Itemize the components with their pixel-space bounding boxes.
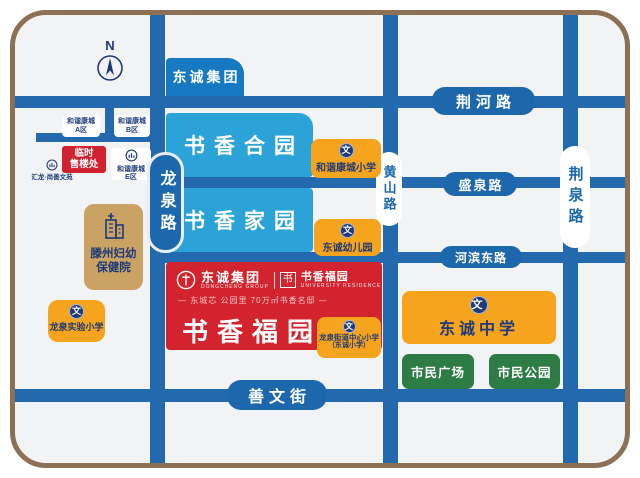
brand-seal-icon: 书	[280, 272, 296, 288]
poi-harmony-kangcheng-e: 和谐康城 E区	[111, 148, 151, 180]
poi-harmony-kangcheng-a: 和谐康城 A区	[62, 115, 100, 137]
wen-school-icon: 文	[340, 223, 355, 238]
logo-en: DONGCHENG GROUP	[201, 284, 269, 290]
poi-label-line1: 滕州妇幼	[84, 247, 143, 261]
wen-glyph: 文	[72, 306, 81, 316]
logo-divider	[274, 272, 275, 289]
poi-label: 龙泉实验小学	[48, 320, 105, 333]
road-label-shanwen-jie: 善文街	[227, 380, 327, 410]
compass-north: N	[96, 38, 124, 87]
poi-harmony-kangcheng-b: 和谐康城 B区	[114, 115, 150, 137]
poi-harmony-kangcheng-primary-school: 文 和谐康城小学	[311, 139, 381, 178]
poi-label-line2: （东诚小学）	[317, 342, 381, 350]
poi-dongcheng-middle-school: 文 东诚中学	[402, 291, 556, 344]
poi-label-line1: 临时	[62, 148, 106, 159]
wen-school-icon: 文	[470, 296, 488, 314]
vicinity-map: N 东诚集团 书香合园 书香家园 东诚集团 DONGCHENG GROUP	[0, 0, 640, 478]
wen-school-icon: 文	[69, 304, 84, 319]
road-huangshan-lu	[383, 15, 398, 463]
project-logo-row: 东诚集团 DONGCHENG GROUP 书 书香福园 UNIVERSITY R…	[176, 270, 381, 290]
building-icon	[46, 159, 58, 171]
poi-civic-park: 市民公园	[489, 354, 560, 389]
poi-dongcheng-kindergarten: 文 东诚幼儿园	[314, 219, 381, 256]
hospital-building-icon	[100, 212, 128, 242]
poi-label-line2: E区	[111, 174, 151, 183]
road-stub-north	[105, 96, 114, 142]
block-shuxiang-heyuan: 书香合园	[166, 113, 313, 177]
poi-label-line1: 和谐康城	[62, 118, 100, 127]
poi-label-line2: 售楼处	[62, 159, 106, 170]
wen-glyph: 文	[345, 322, 353, 331]
wen-glyph: 文	[341, 145, 350, 155]
map-frame: N 东诚集团 书香合园 书香家园 东诚集团 DONGCHENG GROUP	[10, 10, 630, 468]
brand-name-en: UNIVERSITY RESIDENCE	[301, 283, 381, 289]
wen-glyph: 文	[343, 225, 352, 235]
building-icon	[125, 149, 138, 162]
block-shuxiang-jiayuan: 书香家园	[166, 188, 313, 252]
poi-longquan-center-primary-school: 文 龙泉街道中心小学 （东诚小学）	[317, 317, 381, 358]
wen-school-icon: 文	[339, 143, 354, 158]
poi-temporary-sales-office: 临时 售楼处	[62, 146, 106, 173]
road-label-jinghe-lu: 荆河路	[432, 87, 535, 115]
dongcheng-logo-icon	[176, 270, 196, 290]
poi-label-line1: 和谐康城	[111, 166, 151, 175]
poi-label: 东诚中学	[402, 315, 556, 339]
poi-longquan-experimental-primary: 文 龙泉实验小学	[48, 300, 105, 342]
compass-n-label: N	[96, 38, 124, 54]
compass-icon	[96, 54, 124, 82]
project-title: 书香福园	[182, 312, 322, 349]
poi-label: 和谐康城小学	[311, 159, 381, 174]
brand-name: 书香福园	[301, 271, 381, 283]
project-tagline: — 东城芯 公园里 70万㎡书香名邸 —	[178, 295, 328, 306]
poi-label-line1: 和谐康城	[114, 118, 150, 127]
poi-label-line2: A区	[62, 127, 100, 136]
brand-text-group: 书香福园 UNIVERSITY RESIDENCE	[301, 271, 381, 289]
poi-civic-plaza: 市民广场	[402, 354, 474, 389]
wen-school-icon: 文	[343, 320, 356, 333]
road-label-shengquan-lu: 盛泉路	[443, 172, 517, 196]
poi-label: 东诚幼儿园	[314, 239, 381, 254]
road-label-longquan-lu: 龙泉路	[147, 152, 184, 253]
logo-text-group: 东诚集团 DONGCHENG GROUP	[201, 271, 269, 290]
poi-label-line2: B区	[114, 127, 150, 136]
logo-cn: 东诚集团	[201, 271, 269, 284]
wen-glyph: 文	[472, 299, 487, 311]
poi-label-line2: 保健院	[84, 261, 143, 275]
block-dongcheng-group: 东诚集团	[166, 58, 244, 96]
poi-label: 汇龙·尚善文苑	[28, 174, 76, 182]
poi-tengzhou-maternity-hospital: 滕州妇幼 保健院	[84, 204, 143, 290]
road-label-hebin-donglu: 河滨东路	[440, 246, 522, 268]
road-label-jingquan-lu: 荆泉路	[560, 146, 590, 248]
poi-label-line1: 龙泉街道中心小学	[317, 334, 381, 342]
